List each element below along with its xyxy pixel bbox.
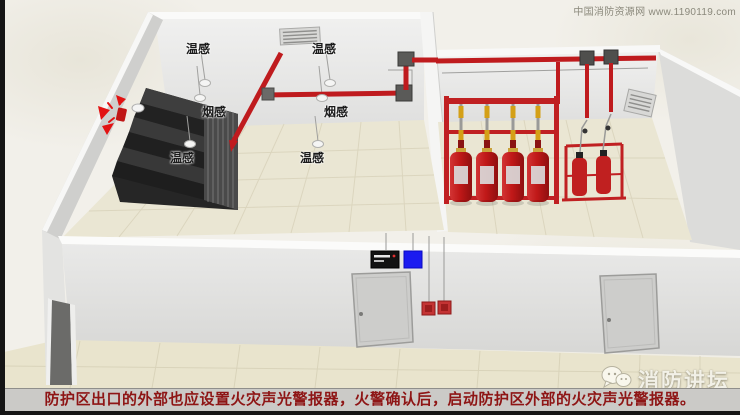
3d-scene [0,0,740,415]
caption-bar: 防护区出口的外部也应设置火灾声光警报器，火警确认后，启动防护区外部的火灾声光警报… [0,388,740,411]
fire-control-panel [371,251,399,268]
left-border [0,0,5,415]
heat-detector-dome [132,104,144,112]
room-door-middle [352,272,413,347]
exit-doorway [46,298,77,385]
bottom-border [0,411,740,415]
room-door-right [600,274,659,353]
sensor-label-temp-4: 温感 [300,149,324,166]
sensor-label-temp-2: 温感 [312,40,336,57]
sensor-label-smoke-1: 烟感 [202,103,226,120]
blue-indicator-box [404,251,422,268]
sensor-label-smoke-2: 烟感 [324,103,348,120]
sensor-label-temp-3: 温感 [170,149,194,166]
sensor-label-temp-1: 温感 [186,40,210,57]
video-frame: 温感 温感 烟感 烟感 温感 温感 中国消防资源网 www.1190119.co… [0,0,740,415]
site-watermark: 中国消防资源网 www.1190119.com [573,3,736,18]
caption-text: 防护区出口的外部也应设置火灾声光警报器，火警确认后，启动防护区外部的火灾声光警报… [44,391,695,408]
